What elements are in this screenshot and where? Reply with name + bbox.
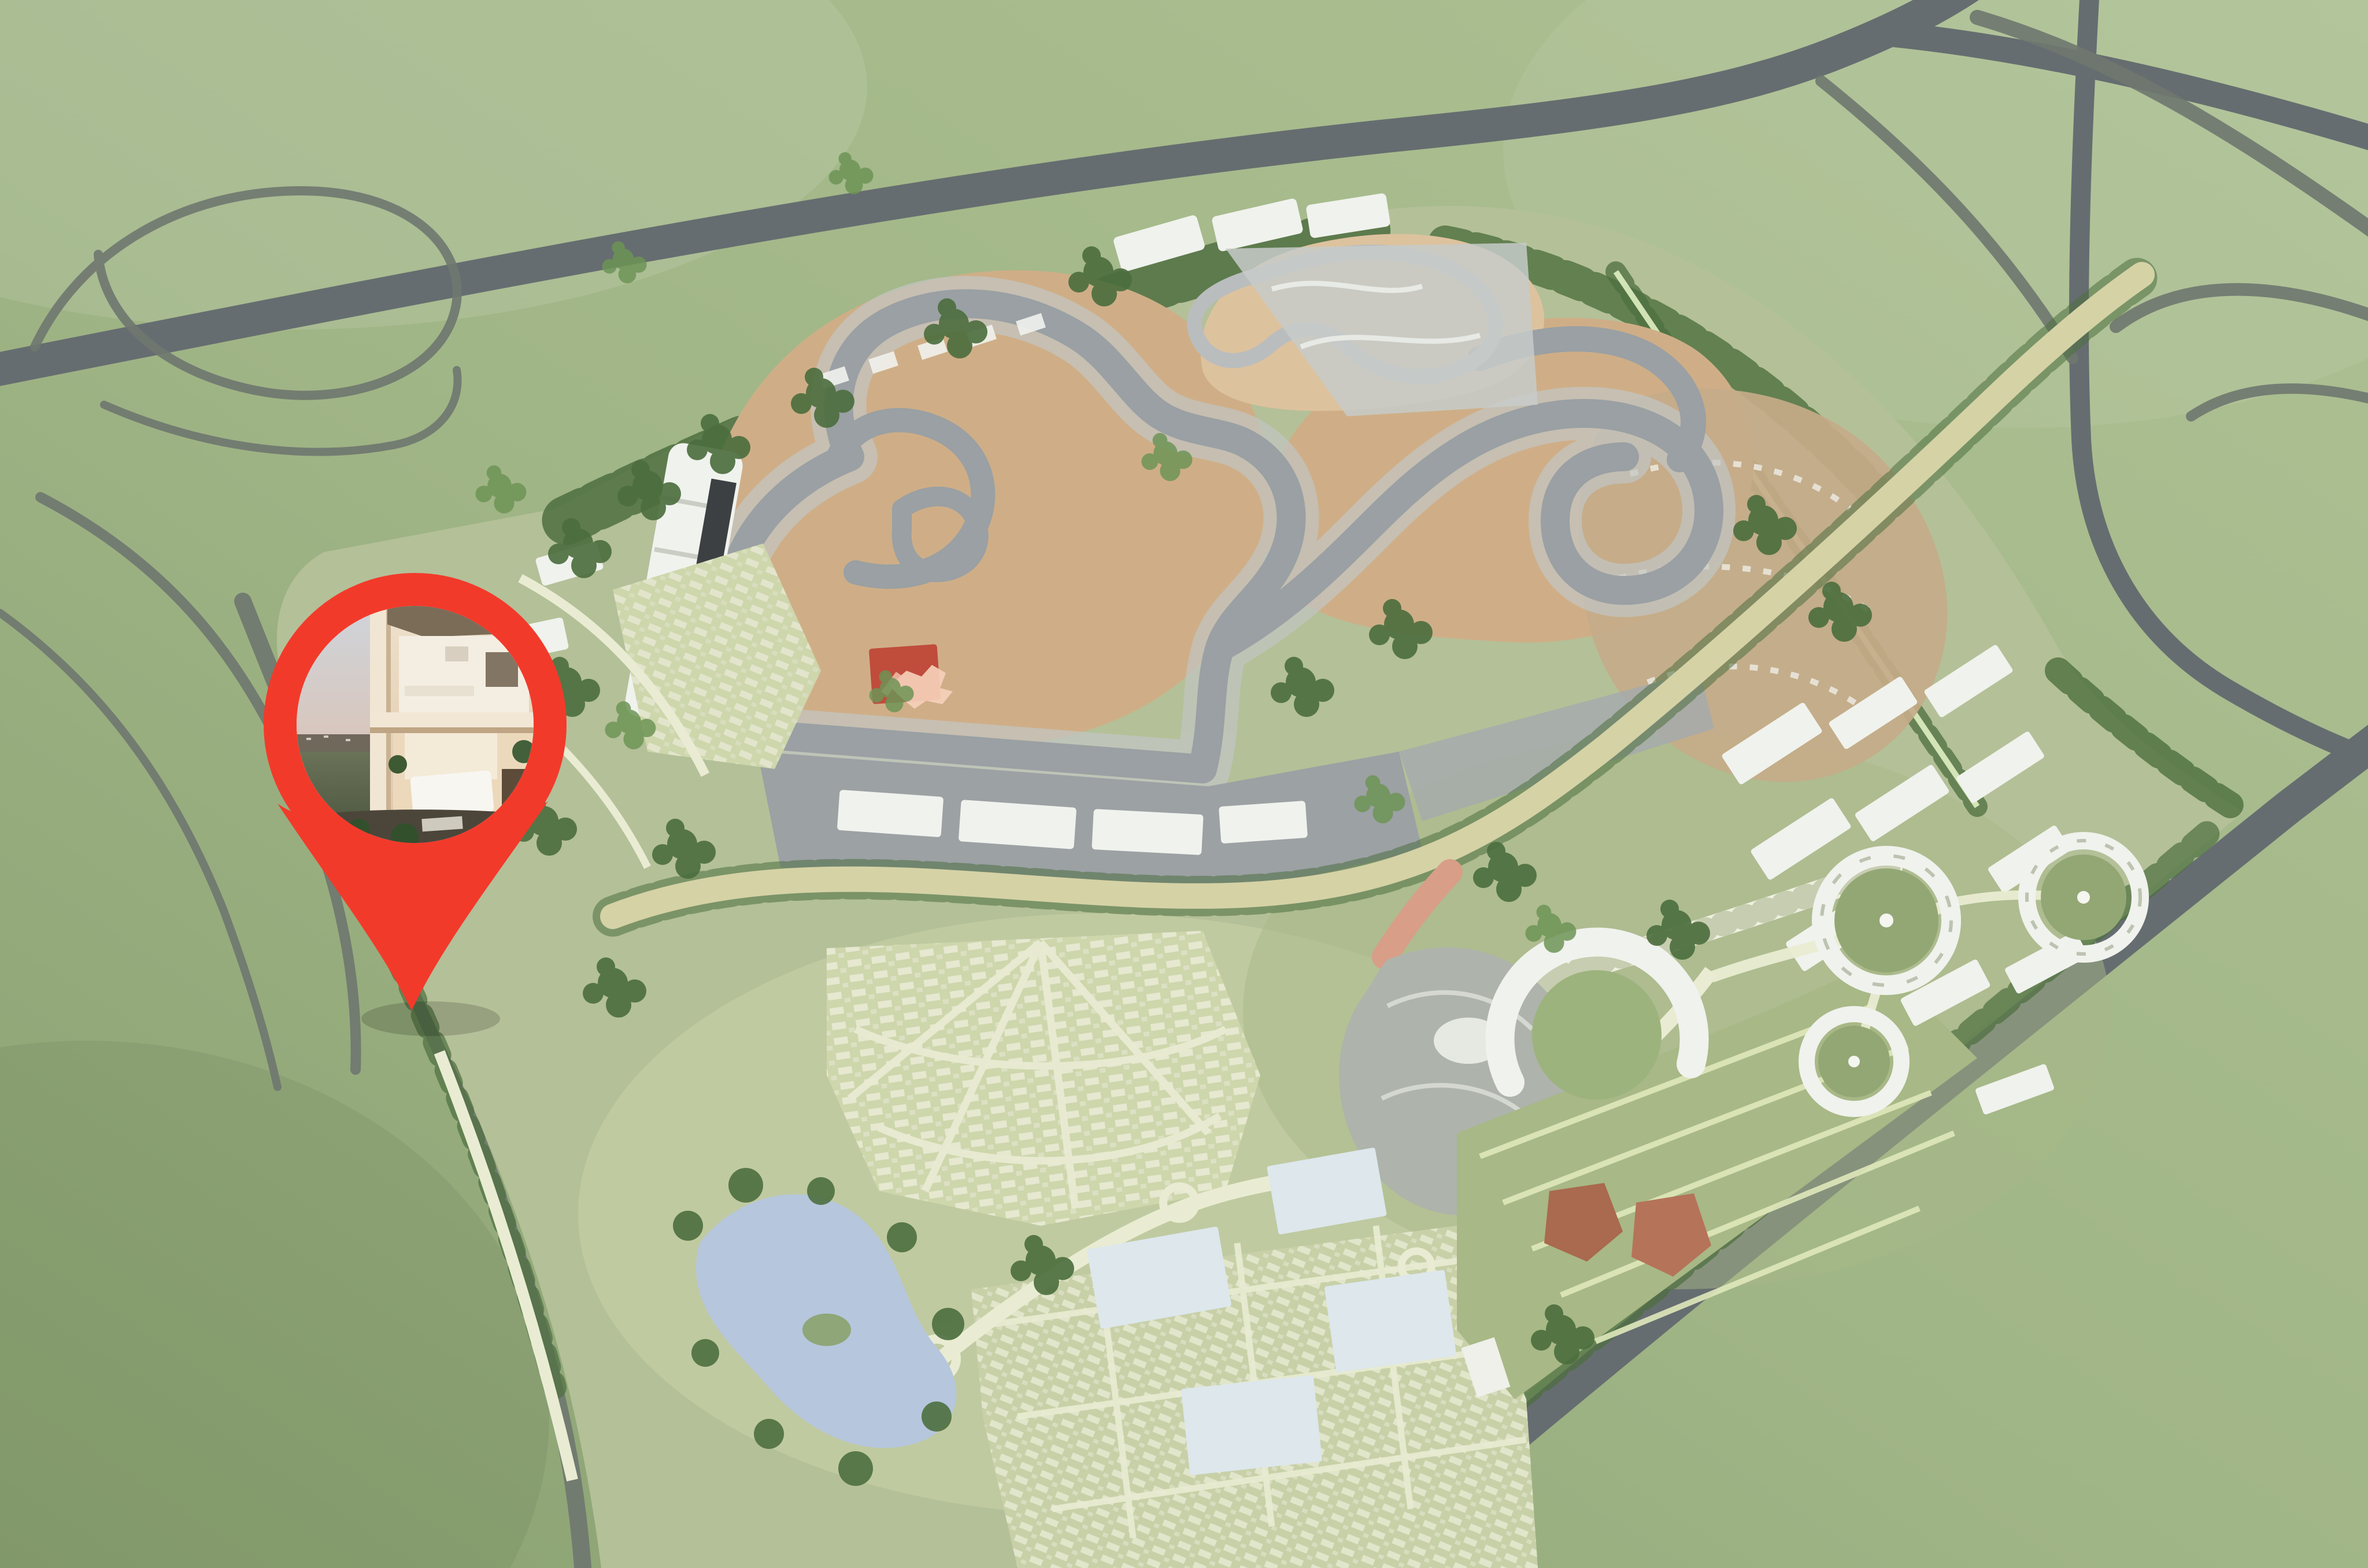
photo-city-light bbox=[306, 738, 311, 740]
pit-building bbox=[1091, 809, 1203, 855]
pit-building bbox=[837, 790, 943, 837]
blue-roof-building bbox=[1324, 1270, 1457, 1373]
masterplan-map bbox=[0, 0, 2368, 1568]
photo-slab-shadow bbox=[370, 727, 535, 733]
pit-building bbox=[1219, 801, 1308, 844]
pit-building bbox=[959, 800, 1077, 849]
photo-slab bbox=[370, 712, 535, 730]
map-canvas bbox=[0, 0, 2368, 1568]
pin-shadow bbox=[361, 1001, 500, 1036]
ring-plaza bbox=[1822, 856, 1951, 985]
lake-island bbox=[802, 1314, 851, 1346]
photo-wall-frame bbox=[445, 646, 468, 661]
ring-plaza bbox=[2027, 841, 2140, 954]
blue-roof-building bbox=[1181, 1375, 1322, 1475]
photo-counter bbox=[405, 686, 474, 696]
residential-fan-village bbox=[827, 931, 1260, 1226]
horseshoe-lawn bbox=[1532, 970, 1662, 1100]
ring-plaza bbox=[1807, 1014, 1901, 1109]
photo-plant bbox=[388, 755, 407, 774]
photo-city-light bbox=[346, 739, 350, 741]
photo-city-light bbox=[324, 735, 328, 738]
